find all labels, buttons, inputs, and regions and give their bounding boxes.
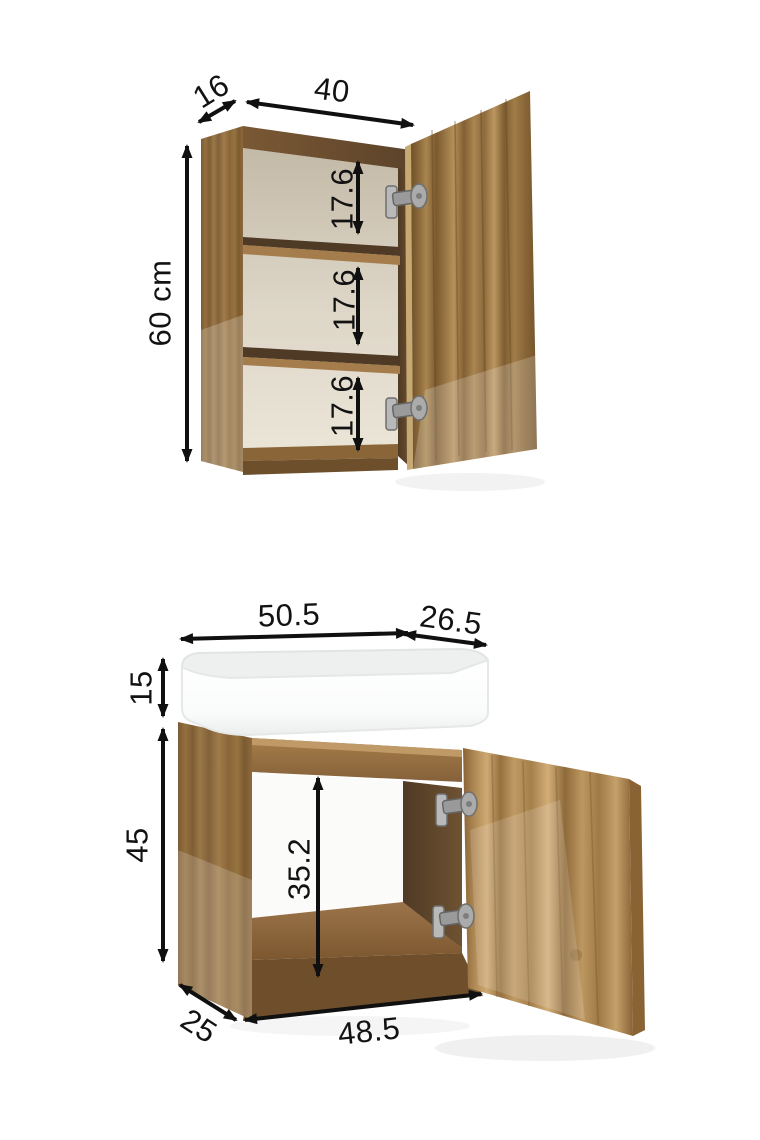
- dim-label-vanity-interior-width: 48.5: [336, 1012, 401, 1049]
- dim-label-vanity-body-height: 45: [122, 827, 153, 862]
- dim-label-vanity-top-width: 50.5: [257, 598, 320, 631]
- dim-label-shelf-gap-2: 17.6: [329, 269, 360, 331]
- dim-label-vanity-door-width: 26.5: [418, 600, 484, 639]
- vanity-interior-back: [252, 772, 403, 918]
- dim-label-vanity-interior-height: 35.2: [284, 838, 315, 900]
- dim-label-shelf-gap-3: 17.6: [327, 375, 358, 437]
- wall-cabinet-shadow: [395, 473, 545, 491]
- vanity-left-panel-light: [178, 850, 252, 1020]
- dim-line-top-width-50-5: [181, 633, 408, 639]
- wall-cabinet-illustration: [201, 91, 545, 491]
- diagram-canvas: [0, 0, 760, 1140]
- dim-label-wall-width: 40: [313, 72, 352, 107]
- vanity-bottom-front-band: [243, 953, 483, 1021]
- wall-cabinet-left-panel-light: [201, 315, 243, 472]
- furniture-dimension-diagram: 16 40 60 cm 17.6 17.6 17.6 50.5 26.5 15 …: [0, 0, 760, 1140]
- vanity-door-shadow: [435, 1035, 655, 1061]
- dim-label-shelf-gap-1: 17.6: [327, 168, 358, 230]
- dim-label-wall-height: 60 cm: [145, 260, 176, 347]
- dim-label-basin-height: 15: [126, 670, 157, 705]
